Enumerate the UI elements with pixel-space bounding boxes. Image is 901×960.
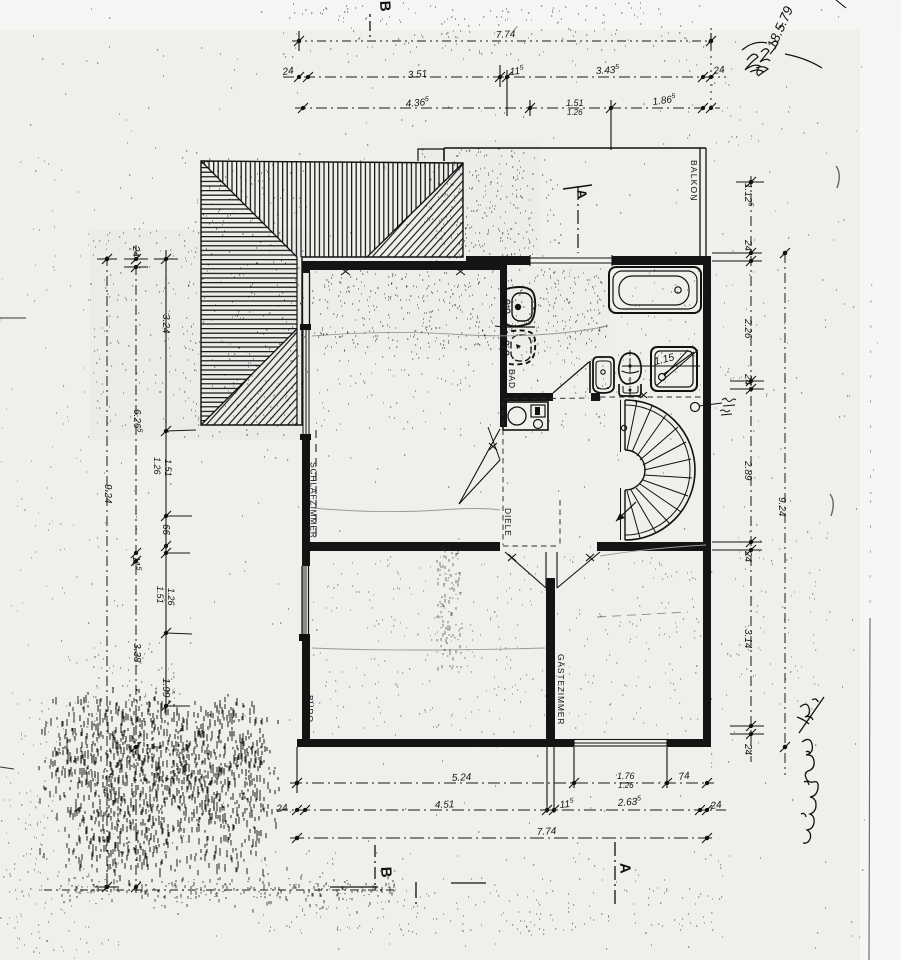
- svg-text:24: 24: [742, 373, 753, 386]
- svg-text:24: 24: [275, 802, 289, 815]
- svg-text:BAD: BAD: [507, 369, 517, 389]
- svg-text:2.26: 2.26: [742, 318, 753, 339]
- svg-text:5.24: 5.24: [452, 772, 472, 784]
- svg-text:3.24: 3.24: [160, 314, 171, 334]
- svg-text:BÜRO: BÜRO: [305, 695, 315, 723]
- svg-text:24: 24: [742, 550, 753, 563]
- svg-text:1.51: 1.51: [566, 98, 584, 108]
- svg-text:24: 24: [742, 743, 753, 756]
- svg-text:1.26: 1.26: [152, 457, 162, 475]
- svg-text:9.24: 9.24: [102, 484, 113, 504]
- svg-text:1.26: 1.26: [166, 588, 176, 606]
- svg-text:B: B: [376, 0, 394, 12]
- svg-text:66: 66: [160, 524, 171, 536]
- svg-text:4.51: 4.51: [435, 799, 455, 811]
- svg-text:1.26: 1.26: [618, 781, 634, 790]
- svg-text:1.76: 1.76: [617, 771, 635, 781]
- svg-text:7.74: 7.74: [496, 29, 516, 41]
- svg-text:1.26: 1.26: [567, 108, 583, 117]
- svg-text:B: B: [377, 866, 395, 878]
- svg-text:1.99: 1.99: [160, 678, 171, 698]
- svg-text:3.51: 3.51: [407, 69, 427, 81]
- svg-text:24: 24: [712, 64, 726, 77]
- svg-text:BALKON: BALKON: [689, 160, 699, 202]
- svg-text:GÄSTEZIMMER: GÄSTEZIMMER: [556, 654, 566, 725]
- svg-text:74: 74: [678, 770, 691, 783]
- svg-text:24: 24: [130, 245, 141, 258]
- svg-text:1.51: 1.51: [163, 459, 173, 477]
- svg-text:3.38: 3.38: [131, 643, 142, 663]
- svg-text:DIELE: DIELE: [503, 508, 513, 537]
- svg-text:SCHLAFZIMMER: SCHLAFZIMMER: [309, 462, 319, 539]
- svg-text:24: 24: [709, 799, 723, 812]
- svg-text:3.14: 3.14: [742, 629, 753, 649]
- svg-text:9.24: 9.24: [776, 497, 787, 517]
- svg-text:24: 24: [281, 65, 295, 78]
- svg-text:A: A: [616, 862, 634, 874]
- svg-text:2.89: 2.89: [742, 460, 753, 481]
- svg-text:24: 24: [742, 239, 753, 252]
- svg-text:1.51: 1.51: [155, 586, 165, 604]
- svg-text:7.74: 7.74: [537, 826, 557, 838]
